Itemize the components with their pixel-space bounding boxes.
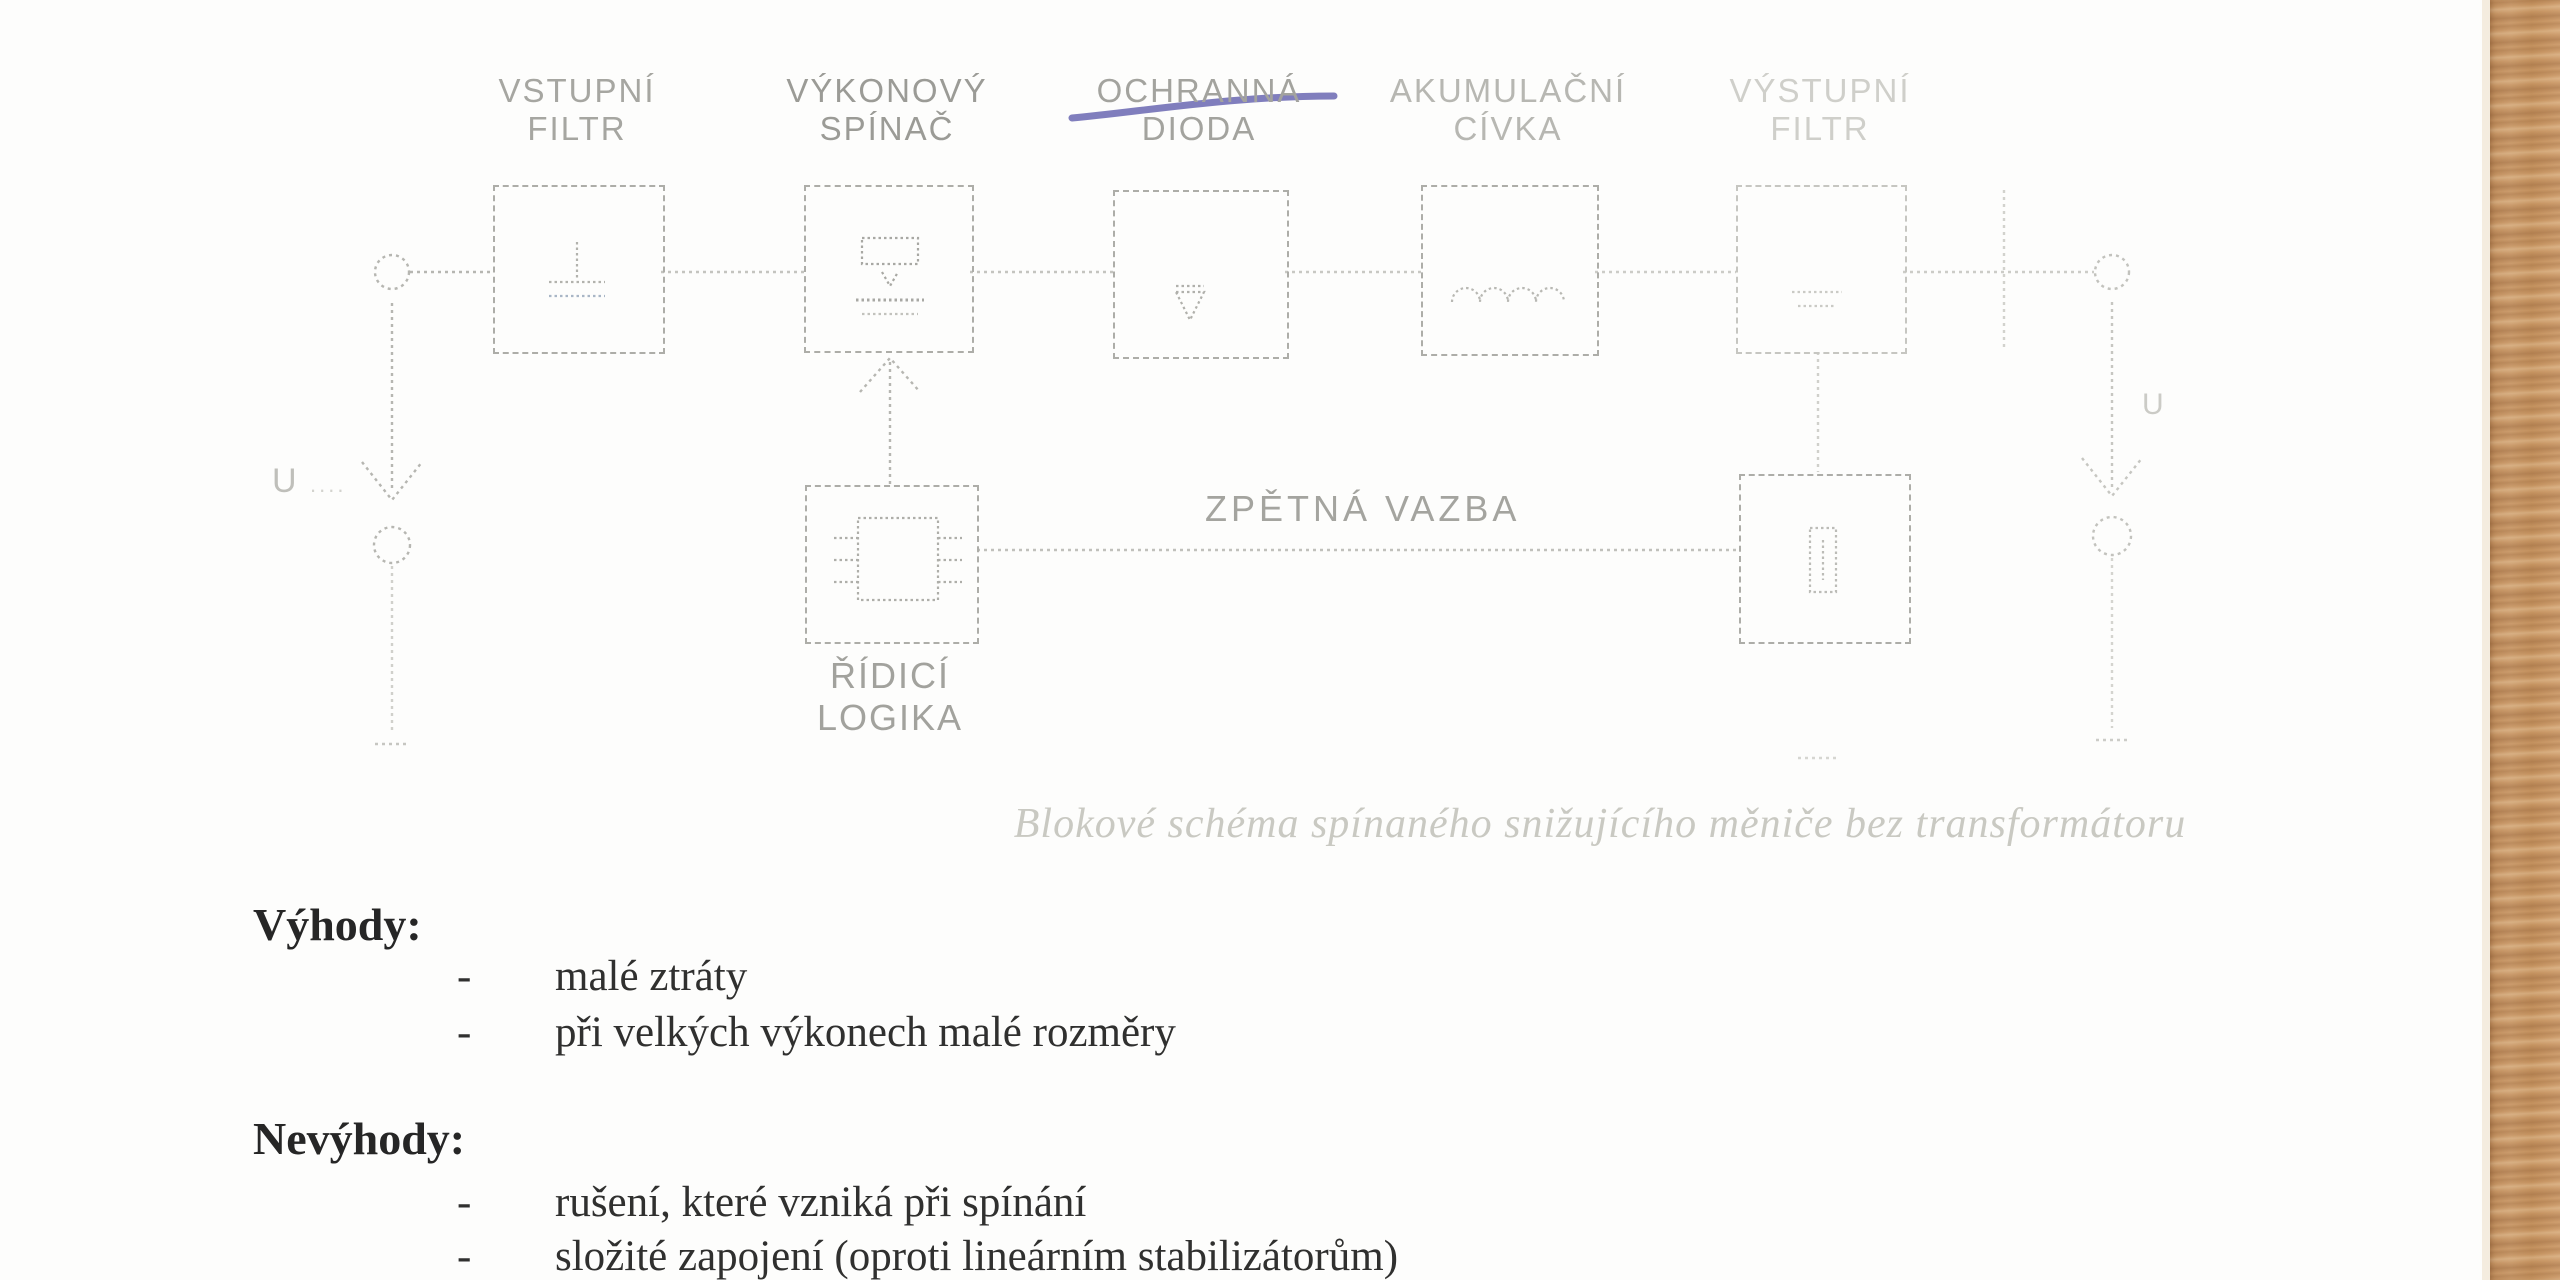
figure-caption: Blokové schéma spínaného snižujícího měn… xyxy=(930,800,2270,848)
block-protection-diode xyxy=(1113,190,1289,359)
label-line: DIODA xyxy=(1059,110,1339,148)
output-terminal-bottom xyxy=(2093,517,2131,555)
bullet-dash: - xyxy=(457,1232,555,1280)
block-accumulation-coil xyxy=(1421,185,1599,356)
bullet-dash: - xyxy=(457,1178,555,1227)
label-line: CÍVKA xyxy=(1368,110,1648,148)
label-line: VÝKONOVÝ xyxy=(786,72,987,109)
drive-arrow-head xyxy=(860,358,920,392)
bullet-dash: - xyxy=(457,952,555,1001)
label-control-logic: ŘÍDICÍ LOGIKA xyxy=(770,655,1010,739)
block-output-sense xyxy=(1739,474,1911,644)
block-output-filter xyxy=(1736,185,1907,354)
label-input-filter: VSTUPNÍ FILTR xyxy=(447,72,707,148)
label-output-filter: VÝSTUPNÍ FILTR xyxy=(1690,72,1950,148)
u-subscript-dots: .... xyxy=(310,472,346,497)
wooden-desk-strip xyxy=(2490,0,2560,1280)
block-power-switch xyxy=(804,185,974,353)
block-control-logic xyxy=(805,485,979,644)
list-item: -malé ztráty xyxy=(457,952,747,1001)
list-item-text: rušení, které vzniká při spínání xyxy=(555,1179,1086,1226)
u-symbol: U xyxy=(272,462,299,500)
scanned-document-page: VSTUPNÍ FILTR VÝKONOVÝ SPÍNAČ OCHRANNÁ D… xyxy=(0,0,2560,1280)
feedback-label: ZPĚTNÁ VAZBA xyxy=(1205,488,1520,530)
disadvantages-heading: Nevýhody: xyxy=(253,1112,465,1165)
label-line: SPÍNAČ xyxy=(757,110,1017,148)
label-line: FILTR xyxy=(1690,110,1950,148)
input-arrow-head xyxy=(362,462,422,500)
input-voltage-label: U .... xyxy=(272,462,346,501)
label-line: VÝSTUPNÍ xyxy=(1729,72,1910,109)
label-line: OCHRANNÁ xyxy=(1097,72,1302,109)
input-terminal-top xyxy=(375,255,409,289)
label-line: AKUMULAČNÍ xyxy=(1390,72,1626,109)
list-item: -rušení, které vzniká při spínání xyxy=(457,1178,1086,1227)
output-arrow-head xyxy=(2082,458,2142,496)
label-line: FILTR xyxy=(447,110,707,148)
bullet-dash: - xyxy=(457,1008,555,1057)
label-power-switch: VÝKONOVÝ SPÍNAČ xyxy=(757,72,1017,148)
input-terminal-bottom xyxy=(374,527,410,563)
advantages-heading: Výhody: xyxy=(253,898,422,951)
list-item-text: při velkých výkonech malé rozměry xyxy=(555,1009,1176,1056)
label-line: VSTUPNÍ xyxy=(498,72,655,109)
output-voltage-label: U xyxy=(2142,388,2166,422)
output-terminal-top xyxy=(2095,255,2129,289)
list-item-text: složité zapojení (oproti lineárním stabi… xyxy=(555,1233,1398,1280)
block-input-filter xyxy=(493,185,665,354)
label-accumulation-coil: AKUMULAČNÍ CÍVKA xyxy=(1368,72,1648,148)
list-item: -složité zapojení (oproti lineárním stab… xyxy=(457,1232,1398,1280)
label-line: ŘÍDICÍ xyxy=(830,655,950,696)
page-edge-gap xyxy=(2482,0,2490,1280)
label-line: LOGIKA xyxy=(817,697,963,738)
label-protection-diode-struck: OCHRANNÁ DIODA xyxy=(1059,72,1339,148)
block-diagram: VSTUPNÍ FILTR VÝKONOVÝ SPÍNAČ OCHRANNÁ D… xyxy=(0,0,2560,880)
list-item-text: malé ztráty xyxy=(555,953,747,1000)
list-item: -při velkých výkonech malé rozměry xyxy=(457,1008,1176,1057)
